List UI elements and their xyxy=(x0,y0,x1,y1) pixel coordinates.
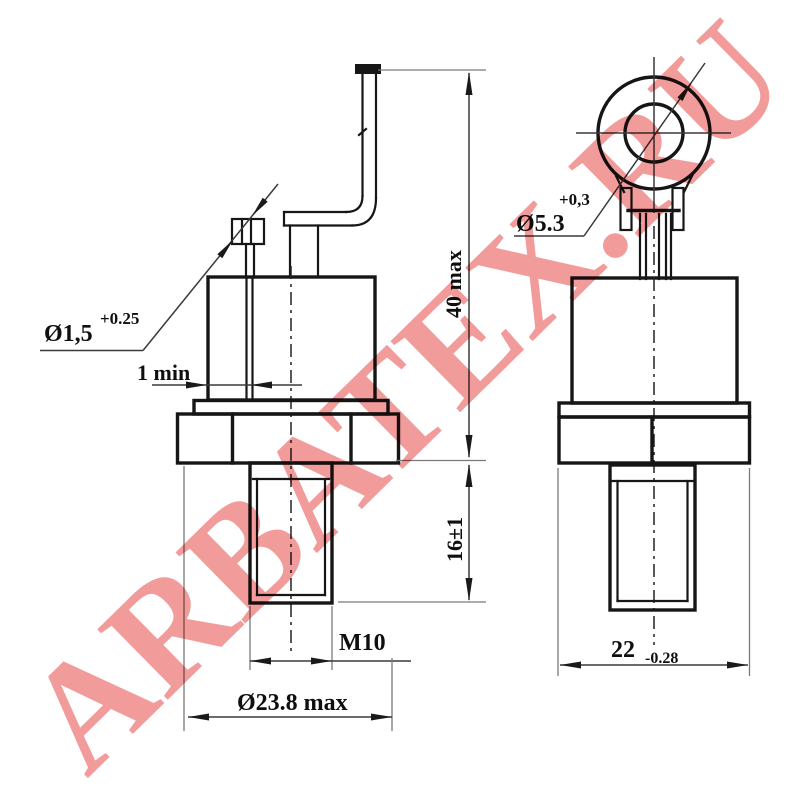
ring-terminal xyxy=(576,57,731,213)
label-m10: M10 xyxy=(339,630,386,656)
label-40max: 40 max xyxy=(441,250,466,318)
label-hex-tol: -0.28 xyxy=(645,650,678,667)
arrowhead xyxy=(727,662,748,669)
arrowhead xyxy=(217,240,233,258)
dimension-body-dia: Ø23.8 max xyxy=(184,466,392,731)
stud-right xyxy=(610,465,695,610)
label-1min: 1 min xyxy=(137,360,190,385)
label-pin-dia: Ø1,5 xyxy=(44,321,93,347)
label-hole-dia: Ø5.3 xyxy=(516,211,565,237)
arrowhead xyxy=(560,662,581,669)
arrowhead xyxy=(466,464,473,487)
label-body-dia: Ø23.8 max xyxy=(237,690,348,716)
arrowhead xyxy=(252,198,268,216)
label-pin-dia-tol: +0.25 xyxy=(100,309,139,328)
dimension-1min: 1 min xyxy=(137,360,302,389)
arrowhead xyxy=(250,658,271,665)
technical-drawing: 40 max 16±1 1 min M10 xyxy=(0,0,787,787)
crimp-leads xyxy=(621,188,684,279)
label-hole-dia-tol: +0,3 xyxy=(559,190,590,209)
left-view xyxy=(178,64,399,652)
dimension-40max: 40 max xyxy=(378,70,486,458)
arrowhead xyxy=(371,714,392,721)
dimension-pin-dia: Ø1,5 +0.25 xyxy=(40,184,278,351)
label-16: 16±1 xyxy=(442,517,467,562)
arrowhead xyxy=(188,714,209,721)
dimension-16: 16±1 xyxy=(338,461,486,603)
arrowhead xyxy=(251,382,272,389)
flange-hex-left xyxy=(178,401,399,464)
right-view xyxy=(559,57,750,645)
bent-lug xyxy=(284,64,381,276)
body-right xyxy=(572,226,737,645)
drawing-canvas: 40 max 16±1 1 min M10 xyxy=(0,0,787,787)
dimension-m10: M10 xyxy=(250,606,411,670)
arrowhead xyxy=(466,435,473,458)
arrowhead xyxy=(466,72,473,95)
arrowhead xyxy=(311,658,332,665)
arrowhead xyxy=(466,578,473,601)
label-hex: 22 xyxy=(611,637,635,663)
control-pin xyxy=(232,219,264,276)
